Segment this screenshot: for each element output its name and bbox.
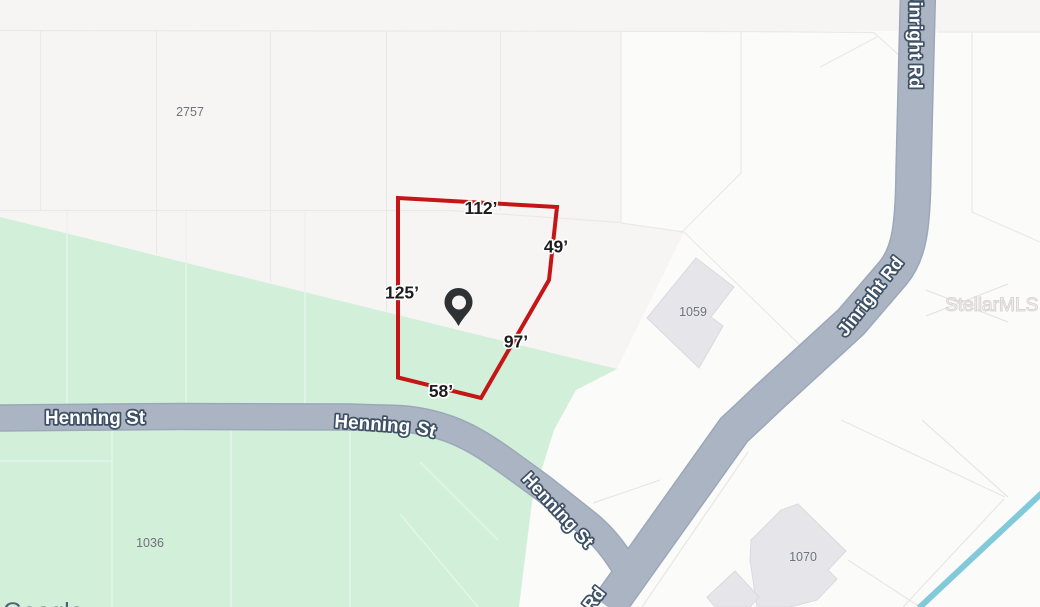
svg-text:2757: 2757	[176, 105, 204, 119]
svg-text:49’: 49’	[544, 237, 568, 257]
svg-text:1036: 1036	[136, 536, 164, 550]
svg-text:Henning St: Henning St	[45, 408, 146, 429]
svg-text:Jinright Rd: Jinright Rd	[906, 0, 927, 89]
svg-text:125’: 125’	[385, 283, 419, 303]
svg-text:StellarMLS: StellarMLS	[945, 294, 1039, 316]
svg-text:Google: Google	[3, 598, 84, 607]
svg-text:1059: 1059	[679, 305, 707, 319]
svg-text:58’: 58’	[429, 381, 453, 401]
svg-text:1070: 1070	[789, 550, 817, 564]
svg-text:97’: 97’	[504, 332, 528, 352]
svg-text:112’: 112’	[464, 198, 497, 218]
